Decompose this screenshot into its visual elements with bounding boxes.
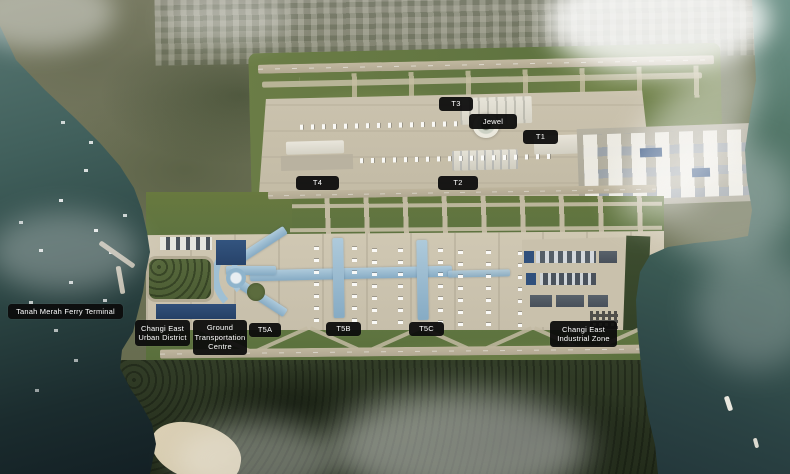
cargo-building <box>692 168 710 178</box>
boats <box>0 0 2 1</box>
parking-structure <box>216 240 246 265</box>
warehouse <box>540 273 596 285</box>
label-terminal-5a: T5A <box>249 323 281 337</box>
aircraft-stand-column <box>486 242 491 326</box>
warehouse <box>536 251 596 263</box>
label-terminal-2: T2 <box>438 176 478 190</box>
label-changi-east-urban-district: Changi East Urban District <box>135 320 190 346</box>
transportation-centre-building <box>160 237 212 250</box>
terminal-4-building <box>286 140 344 155</box>
label-terminal-3: T3 <box>439 97 473 111</box>
urban-district-park <box>146 256 214 302</box>
label-terminal-5b: T5B <box>326 322 361 336</box>
warehouse <box>588 295 608 307</box>
ground-transportation-centre-building <box>156 304 236 319</box>
warehouse <box>530 295 552 307</box>
label-jewel: Jewel <box>469 114 517 129</box>
label-terminal-4: T4 <box>296 176 339 190</box>
warehouse <box>599 251 617 263</box>
warehouse <box>556 295 584 307</box>
aircraft-stand-column <box>438 240 443 324</box>
aircraft-stand-column <box>372 240 377 324</box>
label-terminal-1: T1 <box>523 130 558 144</box>
terminal-5-garden <box>247 283 265 301</box>
terminal-5-cross-pier <box>416 240 428 320</box>
label-terminal-5c: T5C <box>409 322 444 336</box>
terminal-5-hub-rotunda <box>226 268 246 288</box>
terminal-4-apron <box>281 154 353 171</box>
label-changi-east-industrial-zone: Changi East Industrial Zone <box>550 321 617 347</box>
aircraft-stand-column <box>352 238 357 322</box>
airport-aerial-map: T3 Jewel T1 T4 T2 Tanah Merah Ferry Term… <box>0 0 790 474</box>
industrial-building <box>524 251 534 263</box>
industrial-building <box>526 273 536 285</box>
aircraft-stand-column <box>398 240 403 324</box>
label-tanah-merah-ferry-terminal: Tanah Merah Ferry Terminal <box>8 304 123 319</box>
aircraft-stand-column <box>458 242 463 326</box>
terminal-5-cross-pier <box>332 238 344 318</box>
cargo-building <box>640 148 662 158</box>
label-ground-transportation-centre: Ground Transportation Centre <box>193 320 247 355</box>
aircraft-stand-column <box>314 238 319 322</box>
